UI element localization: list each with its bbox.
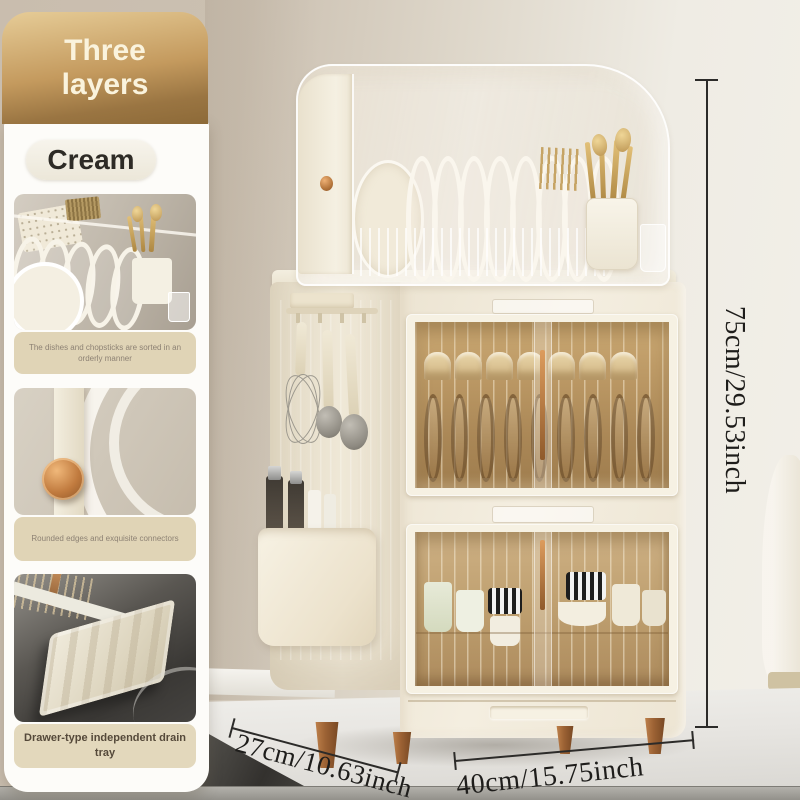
middle-door-copper-handle	[540, 350, 545, 460]
whisk-handle	[295, 322, 307, 376]
cutlery-holder	[132, 258, 172, 304]
feature-caption-rounded-edges: Rounded edges and exquisite connectors	[14, 517, 196, 561]
cup-silhouette	[490, 616, 520, 646]
dome-glass-seam	[352, 74, 354, 274]
dome-copper-knob	[320, 176, 333, 191]
drain-drawer-seam	[408, 700, 676, 702]
bottle-cap	[268, 466, 281, 480]
checkered-cup	[488, 588, 522, 614]
bowl-silhouette	[558, 602, 606, 626]
dome-frame-column	[298, 74, 352, 274]
side-latch-clip	[290, 293, 354, 309]
gold-spoon-head	[150, 204, 162, 221]
three-layers-badge: Three layers	[2, 12, 208, 124]
feature-image-sorted-dishes	[14, 194, 196, 330]
cup-silhouette	[424, 582, 452, 632]
badge-line-2: layers	[62, 68, 149, 102]
drain-drawer-handle	[490, 706, 588, 719]
cup-silhouette	[612, 584, 640, 626]
feature-caption-drain-tray: Drawer-type independent drain tray	[14, 724, 196, 768]
bottom-door-copper-handle	[540, 540, 545, 610]
copper-connector-knob	[42, 458, 84, 500]
background-vase-base	[768, 672, 800, 690]
glass-cup	[640, 224, 666, 272]
spice-bottle	[288, 480, 304, 534]
height-dimension-cap	[695, 726, 718, 728]
chopstick-bundle	[65, 196, 101, 221]
cutlery-holder	[586, 198, 638, 270]
middle-tier-handle	[492, 299, 594, 314]
product-listing-image: 75cm/29.53inch 27cm/10.63inch 40cm/15.75…	[0, 0, 800, 800]
color-variant-label: Cream	[26, 140, 156, 180]
bottle-cap	[290, 471, 302, 484]
glass-cup	[168, 292, 190, 322]
drip-rack-teeth	[360, 228, 608, 276]
gold-chopsticks	[539, 147, 581, 191]
height-dimension-label: 75cm/29.53inch	[718, 306, 750, 494]
side-storage-box	[258, 528, 376, 646]
checkered-cup	[566, 572, 606, 600]
bottom-tier-handle	[492, 506, 594, 523]
ladle-head	[340, 414, 368, 450]
color-name: Cream	[47, 144, 134, 176]
gold-spoon-head	[132, 206, 143, 222]
height-dimension-cap	[695, 79, 718, 81]
badge-line-1: Three	[64, 34, 146, 68]
cup-silhouette	[642, 590, 666, 626]
spice-bottle	[266, 476, 283, 534]
ladle-head	[316, 406, 342, 438]
hook	[362, 313, 366, 323]
feature-image-drain-tray	[14, 574, 196, 722]
whisk-wires	[288, 374, 318, 444]
feature-image-rounded-edges	[14, 388, 196, 515]
feature-caption-sorted-dishes: The dishes and chopsticks are sorted in …	[14, 332, 196, 374]
hook	[318, 313, 322, 323]
ladle-handle	[322, 330, 333, 410]
hook	[340, 313, 344, 323]
height-dimension-line	[706, 80, 708, 728]
cup-silhouette	[456, 590, 484, 632]
